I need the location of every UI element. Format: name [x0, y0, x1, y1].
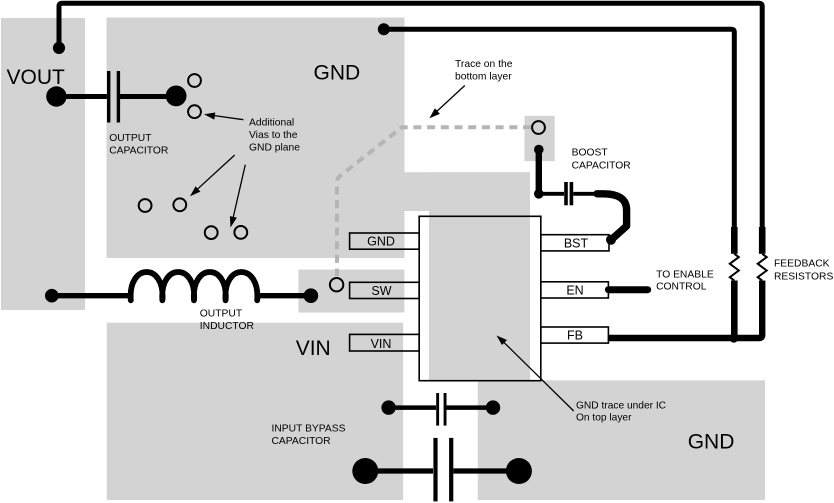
svg-text:OUTPUT: OUTPUT [109, 133, 152, 144]
svg-text:VIN: VIN [296, 337, 331, 360]
svg-text:CAPACITOR: CAPACITOR [109, 146, 168, 157]
svg-text:GND trace under IC: GND trace under IC [576, 401, 666, 412]
svg-text:On top layer: On top layer [576, 413, 632, 424]
svg-text:RESISTORS: RESISTORS [774, 271, 833, 282]
svg-text:INPUT BYPASS: INPUT BYPASS [272, 424, 346, 435]
svg-text:Additional: Additional [249, 118, 294, 129]
svg-text:GND: GND [314, 61, 361, 84]
svg-text:SW: SW [371, 284, 391, 298]
svg-text:EN: EN [566, 283, 583, 297]
svg-text:GND plane: GND plane [249, 143, 300, 154]
svg-text:INDUCTOR: INDUCTOR [200, 321, 254, 332]
svg-text:OUTPUT: OUTPUT [200, 309, 243, 320]
svg-text:BST: BST [564, 236, 589, 250]
svg-text:VIN: VIN [371, 337, 392, 351]
svg-text:CAPACITOR: CAPACITOR [272, 436, 331, 447]
svg-text:TO ENABLE: TO ENABLE [656, 270, 714, 281]
svg-text:FB: FB [567, 329, 583, 343]
svg-text:Vias to the: Vias to the [249, 130, 298, 141]
svg-text:FEEDBACK: FEEDBACK [774, 259, 830, 270]
svg-text:BOOST: BOOST [572, 148, 609, 159]
svg-text:CONTROL: CONTROL [656, 282, 707, 293]
svg-text:GND: GND [367, 235, 395, 249]
svg-text:CAPACITOR: CAPACITOR [572, 160, 631, 171]
svg-text:GND: GND [688, 431, 735, 454]
svg-text:bottom layer: bottom layer [455, 72, 512, 83]
svg-text:VOUT: VOUT [7, 66, 66, 89]
svg-text:Trace on the: Trace on the [455, 59, 513, 70]
